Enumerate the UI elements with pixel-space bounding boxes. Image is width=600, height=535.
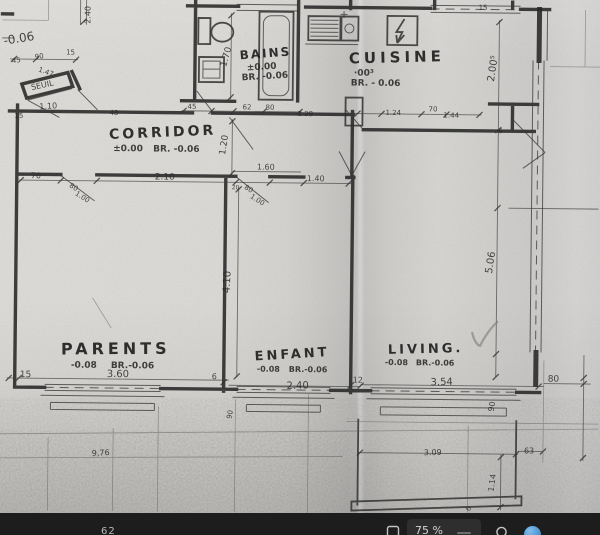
dimension-label: 2.40 (83, 6, 92, 24)
dimension-label: 15 (14, 112, 23, 120)
zoom-level-label: 75 % (415, 524, 443, 535)
dimension-label: 80 (266, 104, 275, 112)
dimension-label: 90 (486, 401, 497, 413)
room-level-corridor: ±0.00 (113, 144, 143, 154)
dimension-label: 9,76 (92, 448, 110, 458)
dimension-label: 70 (31, 171, 41, 180)
room-level-living: -0.08 (385, 358, 409, 367)
dimension-label: 15 (66, 49, 75, 57)
dimension-label: 15 (20, 370, 32, 380)
room-label-cuisine: CUISINE (349, 47, 445, 67)
dimension-label: 48 (109, 109, 118, 117)
dimension-label: 63 (524, 446, 534, 455)
dimension-label: 1.10 (39, 101, 57, 111)
dimension-label: 70 (429, 105, 438, 113)
dimension-label: 90 (34, 52, 44, 61)
dimension-label: 1.44 (443, 111, 459, 119)
dimension-label: 2.10 (155, 172, 175, 182)
zoom-slider[interactable] (457, 532, 471, 534)
dimension-label: 20 (232, 184, 240, 191)
toolbar-left-label[interactable]: 62 (101, 526, 116, 535)
room-remark-cuisine: BR. - 0.06 (351, 79, 401, 90)
dimension-label: 62 (243, 103, 252, 111)
viewer-toolbar: 62 75 % (0, 513, 600, 535)
dimension-label: 15 (479, 4, 488, 12)
room-remark-living: BR.-0.06 (416, 358, 455, 367)
dimension-label: 6 (212, 372, 217, 381)
dimension-label: 4.10 (222, 271, 234, 294)
fit-screen-icon[interactable] (386, 524, 400, 535)
dimension-label: 45 (188, 103, 197, 111)
floorplan-drawing: BAINS ±0.00 BR. -0.06 CUISINE ·00³ BR. -… (0, 0, 600, 513)
room-level-parents: -0.08 (71, 361, 97, 371)
dimension-label: 1.28 (297, 110, 313, 118)
room-remark-enfant: BR.-0.06 (289, 365, 328, 374)
dimension-label: 45 (11, 56, 21, 65)
room-label-parents: PARENTS (61, 339, 171, 359)
dimension-label: 3.60 (107, 369, 129, 380)
paper-texture-corner (0, 430, 350, 513)
photo-viewer-window: BAINS ±0.00 BR. -0.06 CUISINE ·00³ BR. -… (0, 0, 600, 535)
zoom-control[interactable]: 75 % (407, 519, 481, 535)
dimension-label: 1.40 (307, 174, 325, 183)
room-level-cuisine: ·00³ (354, 69, 374, 79)
dimension-label: 12 (353, 376, 363, 385)
room-level-enfant: -0.08 (257, 365, 281, 374)
dimension-label: 80 (548, 375, 560, 385)
dimension-label: 1.60 (257, 163, 275, 172)
search-icon[interactable] (495, 525, 509, 535)
floorplan-image[interactable]: BAINS ±0.00 BR. -0.06 CUISINE ·00³ BR. -… (0, 0, 600, 513)
dimension-label: 3.09 (424, 448, 442, 457)
account-circle-icon[interactable] (524, 526, 541, 535)
dimension-label: 6 (498, 127, 503, 135)
dimension-label: 2.40 (286, 380, 309, 392)
room-label-living: LIVING. (388, 341, 464, 358)
dimension-label: 3.54 (430, 377, 453, 389)
dimension-label: 90 (225, 409, 235, 419)
dimension-label: 1.24 (385, 109, 401, 117)
room-remark-corridor: BR. -0.06 (153, 144, 200, 154)
